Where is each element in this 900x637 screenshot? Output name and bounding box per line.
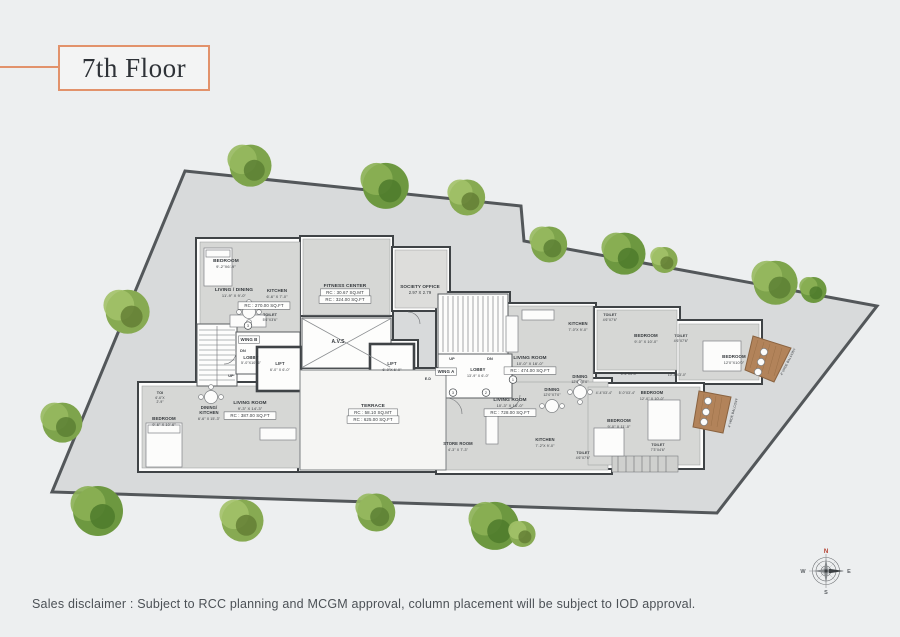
- plan-label: BEDROOM: [607, 418, 631, 423]
- svg-text:4'6"X7'6": 4'6"X7'6": [674, 339, 689, 343]
- svg-text:6'-6" X 7'-0": 6'-6" X 7'-0": [266, 295, 288, 299]
- plan-label: STORE ROOM: [443, 441, 473, 446]
- svg-text:6'-6" X 15'-3": 6'-6" X 15'-3": [198, 417, 221, 421]
- plan-label: 4'-3" X 7'-3": [448, 448, 469, 452]
- svg-text:TOI: TOI: [157, 391, 164, 395]
- svg-text:BEDROOM: BEDROOM: [722, 354, 746, 359]
- plan-label: RC : 728.00 SQ.FT: [484, 409, 536, 416]
- tree-icon: [355, 494, 395, 532]
- compass-south: S: [824, 590, 828, 596]
- plan-label: BEDROOM: [641, 390, 664, 395]
- plan-label: DINING: [572, 374, 587, 379]
- svg-text:5'-4"X3'-0": 5'-4"X3'-0": [621, 372, 638, 376]
- svg-text:9'-0" X 10'-0": 9'-0" X 10'-0": [634, 340, 658, 344]
- plan-label: 4'6"X7'6": [603, 318, 618, 322]
- svg-text:BEDROOM: BEDROOM: [607, 418, 631, 423]
- svg-text:BEDROOM: BEDROOM: [634, 333, 658, 338]
- plan-label: RC : 474.00 SQ.FT: [504, 367, 556, 374]
- svg-text:2: 2: [485, 391, 487, 395]
- compass-east: E: [847, 569, 851, 575]
- svg-text:1: 1: [512, 378, 514, 382]
- plan-label: RC : 387.00 SQ.FT: [224, 412, 276, 419]
- sales-disclaimer: Sales disclaimer : Subject to RCC planni…: [32, 597, 695, 611]
- svg-text:RC : 58.10 SQ.MT: RC : 58.10 SQ.MT: [354, 410, 392, 415]
- svg-text:RC : 270.00 SQ.FT: RC : 270.00 SQ.FT: [244, 303, 283, 308]
- svg-text:10'-4"X3'-0": 10'-4"X3'-0": [668, 373, 687, 377]
- svg-text:RC : 474.00 SQ.FT: RC : 474.00 SQ.FT: [510, 368, 549, 373]
- tree-icon: [508, 521, 535, 547]
- plan-label: TOILET: [651, 443, 665, 447]
- svg-text:LOBBY: LOBBY: [243, 355, 258, 360]
- svg-text:6'-0"X 6'-0": 6'-0"X 6'-0": [383, 368, 403, 372]
- svg-text:10'-3" X 16'-0": 10'-3" X 16'-0": [497, 403, 524, 408]
- svg-text:9'-3" X 14'-3": 9'-3" X 14'-3": [238, 406, 263, 411]
- svg-text:A.V.S: A.V.S: [331, 339, 345, 345]
- svg-text:13'-9" X 6'-0": 13'-9" X 6'-0": [467, 374, 490, 378]
- plan-label: UP: [449, 357, 455, 361]
- svg-text:12'0"X7'0": 12'0"X7'0": [571, 380, 589, 384]
- svg-text:LOBBY: LOBBY: [470, 367, 485, 372]
- floor-plan: BEDROOM9'-2"X6'-9"LIVING / DINING11'-9" …: [0, 0, 900, 637]
- tree-icon: [71, 486, 124, 536]
- plan-label: DINING: [544, 387, 559, 392]
- plan-label: TOILET: [603, 313, 617, 317]
- svg-text:TOILET: TOILET: [263, 313, 278, 317]
- plan-label: 13'-9" X 6'-0": [467, 374, 490, 378]
- plan-label: 3: [449, 389, 457, 397]
- plan-label: 9'-0" X 11'-0": [608, 425, 632, 429]
- plan-label: LOBBY: [243, 355, 258, 360]
- plan-label: KITCHEN: [568, 321, 587, 326]
- svg-text:7'3"X4'6": 7'3"X4'6": [651, 448, 666, 452]
- plan-label: 5'6"X3'6": [263, 318, 278, 322]
- plan-label: KITCHEN: [267, 288, 287, 293]
- svg-text:9'-0" X 11'-0": 9'-0" X 11'-0": [608, 425, 632, 429]
- plan-label: 9'-6" X 10'-6": [152, 423, 176, 427]
- svg-text:10'-0" X 16'-0": 10'-0" X 16'-0": [517, 361, 544, 366]
- svg-text:4'6"X7'6": 4'6"X7'6": [603, 318, 618, 322]
- svg-text:2.97 X 2.79: 2.97 X 2.79: [409, 290, 432, 295]
- compass-west: W: [800, 569, 806, 575]
- plan-label: DN: [487, 357, 493, 361]
- svg-text:TOILET: TOILET: [576, 451, 590, 455]
- svg-text:WING B: WING B: [241, 337, 258, 342]
- tree-icon: [103, 290, 149, 334]
- svg-text:4'-4"X3'-4": 4'-4"X3'-4": [596, 391, 613, 395]
- svg-text:12'0"X10'0": 12'0"X10'0": [724, 361, 745, 365]
- svg-text:RC : 30.67 SQ.MT: RC : 30.67 SQ.MT: [326, 290, 364, 295]
- plan-label: 2.97 X 2.79: [409, 290, 432, 295]
- plan-label: RC : 30.67 SQ.MT: [320, 289, 369, 296]
- plan-label: 7'-0"X 9'-0": [569, 328, 589, 332]
- svg-text:12'-0" X 10'-0": 12'-0" X 10'-0": [640, 397, 665, 401]
- svg-text:5'-0"X10'-6": 5'-0"X10'-6": [241, 361, 262, 365]
- tree-icon: [219, 500, 263, 542]
- plan-label: SOCIETY OFFICE: [400, 284, 440, 289]
- tree-icon: [40, 403, 82, 443]
- svg-text:9'-6" X 10'-6": 9'-6" X 10'-6": [152, 423, 176, 427]
- svg-text:WING A: WING A: [438, 369, 456, 374]
- plan-label: 4'6"X7'6": [674, 339, 689, 343]
- svg-text:SOCIETY OFFICE: SOCIETY OFFICE: [400, 284, 440, 289]
- plan-label: 7'3"X4'6": [651, 448, 666, 452]
- plan-label: 4'-4"X3'-4": [596, 391, 613, 395]
- plan-label: KITCHEN: [535, 437, 554, 442]
- svg-text:TOILET: TOILET: [651, 443, 665, 447]
- plan-label: 11'-9" X 9'-0": [222, 293, 247, 298]
- svg-text:RC : 728.00 SQ.FT: RC : 728.00 SQ.FT: [490, 410, 529, 415]
- plan-label: 3: [244, 322, 252, 330]
- plan-label: RC : 625.00 SQ.FT: [347, 416, 399, 423]
- svg-text:BEDROOM: BEDROOM: [641, 390, 664, 395]
- plan-label: 5'-4"X3'-0": [621, 372, 638, 376]
- plan-label: 10'-3" X 16'-0": [497, 403, 524, 408]
- plan-label: 5'-0"X3'-4": [619, 391, 636, 395]
- svg-text:STORE ROOM: STORE ROOM: [443, 441, 473, 446]
- svg-text:LIFT: LIFT: [387, 361, 397, 366]
- svg-text:3: 3: [452, 391, 454, 395]
- plan-label: WING A: [436, 368, 457, 375]
- svg-text:12'0"X7'0": 12'0"X7'0": [543, 393, 561, 397]
- title-connector-line: [0, 66, 58, 68]
- plan-label: 6'-0"X 6'-0": [383, 368, 403, 372]
- plan-label: BEDROOM: [634, 333, 658, 338]
- svg-text:RC : 387.00 SQ.FT: RC : 387.00 SQ.FT: [230, 413, 269, 418]
- svg-text:5'-0"X3'-4": 5'-0"X3'-4": [619, 391, 636, 395]
- svg-text:TOILET: TOILET: [603, 313, 617, 317]
- plan-label: 5'-0"X10'-6": [241, 361, 262, 365]
- plan-label: 6'-0" X 6'-0": [270, 368, 291, 372]
- svg-text:KITCHEN: KITCHEN: [535, 437, 554, 442]
- svg-text:BEDROOM: BEDROOM: [152, 416, 176, 421]
- svg-text:TOILET: TOILET: [674, 334, 688, 338]
- svg-text:DINING: DINING: [544, 387, 559, 392]
- svg-text:7'-0"X 9'-0": 7'-0"X 9'-0": [569, 328, 589, 332]
- plan-label: 12'-0" X 10'-0": [640, 397, 665, 401]
- svg-text:2'-9": 2'-9": [156, 400, 164, 404]
- svg-text:E.D: E.D: [425, 377, 432, 381]
- svg-text:RC : 324.00 SQ.FT: RC : 324.00 SQ.FT: [325, 297, 364, 302]
- plan-label: TOILET: [263, 313, 278, 317]
- plan-label: 7'-2"X 9'-0": [536, 444, 556, 448]
- svg-text:UP: UP: [228, 374, 234, 378]
- compass-rose: N E S W: [800, 549, 851, 596]
- svg-text:KITCHEN: KITCHEN: [199, 410, 218, 415]
- plan-label: RC : 324.00 SQ.FT: [319, 296, 371, 303]
- plan-label: 12'0"X7'0": [571, 380, 589, 384]
- plan-label: TERRACE: [361, 403, 386, 409]
- plan-label: BEDROOM: [722, 354, 746, 359]
- svg-text:4'-3" X 7'-3": 4'-3" X 7'-3": [448, 448, 469, 452]
- plan-label: 2: [482, 389, 490, 397]
- floor-title: 7th Floor: [58, 45, 210, 91]
- page: BEDROOM9'-2"X6'-9"LIVING / DINING11'-9" …: [0, 0, 900, 637]
- svg-text:LIFT: LIFT: [275, 361, 285, 366]
- svg-text:UP: UP: [449, 357, 455, 361]
- plan-label: 2'-9": [156, 400, 164, 404]
- plan-label: 6'-6" X 7'-0": [266, 295, 288, 299]
- svg-text:DINING: DINING: [572, 374, 587, 379]
- compass-north: N: [824, 549, 828, 555]
- compass-needle: [829, 569, 844, 573]
- plan-label: TOILET: [674, 334, 688, 338]
- svg-text:7'-2"X 9'-0": 7'-2"X 9'-0": [536, 444, 556, 448]
- svg-text:RC : 625.00 SQ.FT: RC : 625.00 SQ.FT: [353, 417, 392, 422]
- svg-text:DN: DN: [487, 357, 493, 361]
- plan-label: TOILET: [576, 451, 590, 455]
- plan-label: FITNESS CENTER: [324, 283, 367, 289]
- svg-text:9'-2"X6'-9": 9'-2"X6'-9": [216, 264, 236, 269]
- plan-label: A.V.S: [331, 339, 345, 345]
- plan-label: 12'0"X10'0": [724, 361, 745, 365]
- svg-text:6'-0" X 6'-0": 6'-0" X 6'-0": [270, 368, 291, 372]
- plan-label: BEDROOM: [152, 416, 176, 421]
- svg-text:3: 3: [247, 324, 249, 328]
- plan-label: RC : 270.00 SQ.FT: [238, 302, 290, 309]
- plan-label: LIFT: [275, 361, 285, 366]
- plan-label: 9'-0" X 10'-0": [634, 340, 658, 344]
- plan-label: E.D: [425, 377, 432, 381]
- plan-label: 9'-2"X6'-9": [216, 264, 236, 269]
- svg-text:11'-9" X 9'-0": 11'-9" X 9'-0": [222, 293, 247, 298]
- plan-label: RC : 58.10 SQ.MT: [348, 409, 397, 416]
- svg-text:TERRACE: TERRACE: [361, 403, 386, 409]
- floor-title-text: 7th Floor: [82, 53, 186, 84]
- svg-text:5'6"X3'6": 5'6"X3'6": [263, 318, 278, 322]
- svg-text:FITNESS CENTER: FITNESS CENTER: [324, 283, 367, 289]
- plan-label: 10'-0" X 16'-0": [517, 361, 544, 366]
- plan-label: WING B: [239, 336, 260, 343]
- svg-text:DN: DN: [240, 349, 246, 353]
- svg-text:KITCHEN: KITCHEN: [267, 288, 287, 293]
- plan-label: LOBBY: [470, 367, 485, 372]
- svg-text:KITCHEN: KITCHEN: [568, 321, 587, 326]
- plan-label: UP: [228, 374, 234, 378]
- plan-label: LIFT: [387, 361, 397, 366]
- plan-label: 1: [509, 376, 517, 384]
- plan-label: KITCHEN: [199, 410, 218, 415]
- plan-label: 6'-6" X 15'-3": [198, 417, 221, 421]
- plan-label: 9'-3" X 14'-3": [238, 406, 263, 411]
- plan-label: TOI: [157, 391, 164, 395]
- svg-text:4'6"X7'6": 4'6"X7'6": [576, 456, 591, 460]
- plan-label: 4'6"X7'6": [576, 456, 591, 460]
- plan-label: 10'-4"X3'-0": [668, 373, 687, 377]
- plan-label: DN: [240, 349, 246, 353]
- plan-label: 12'0"X7'0": [543, 393, 561, 397]
